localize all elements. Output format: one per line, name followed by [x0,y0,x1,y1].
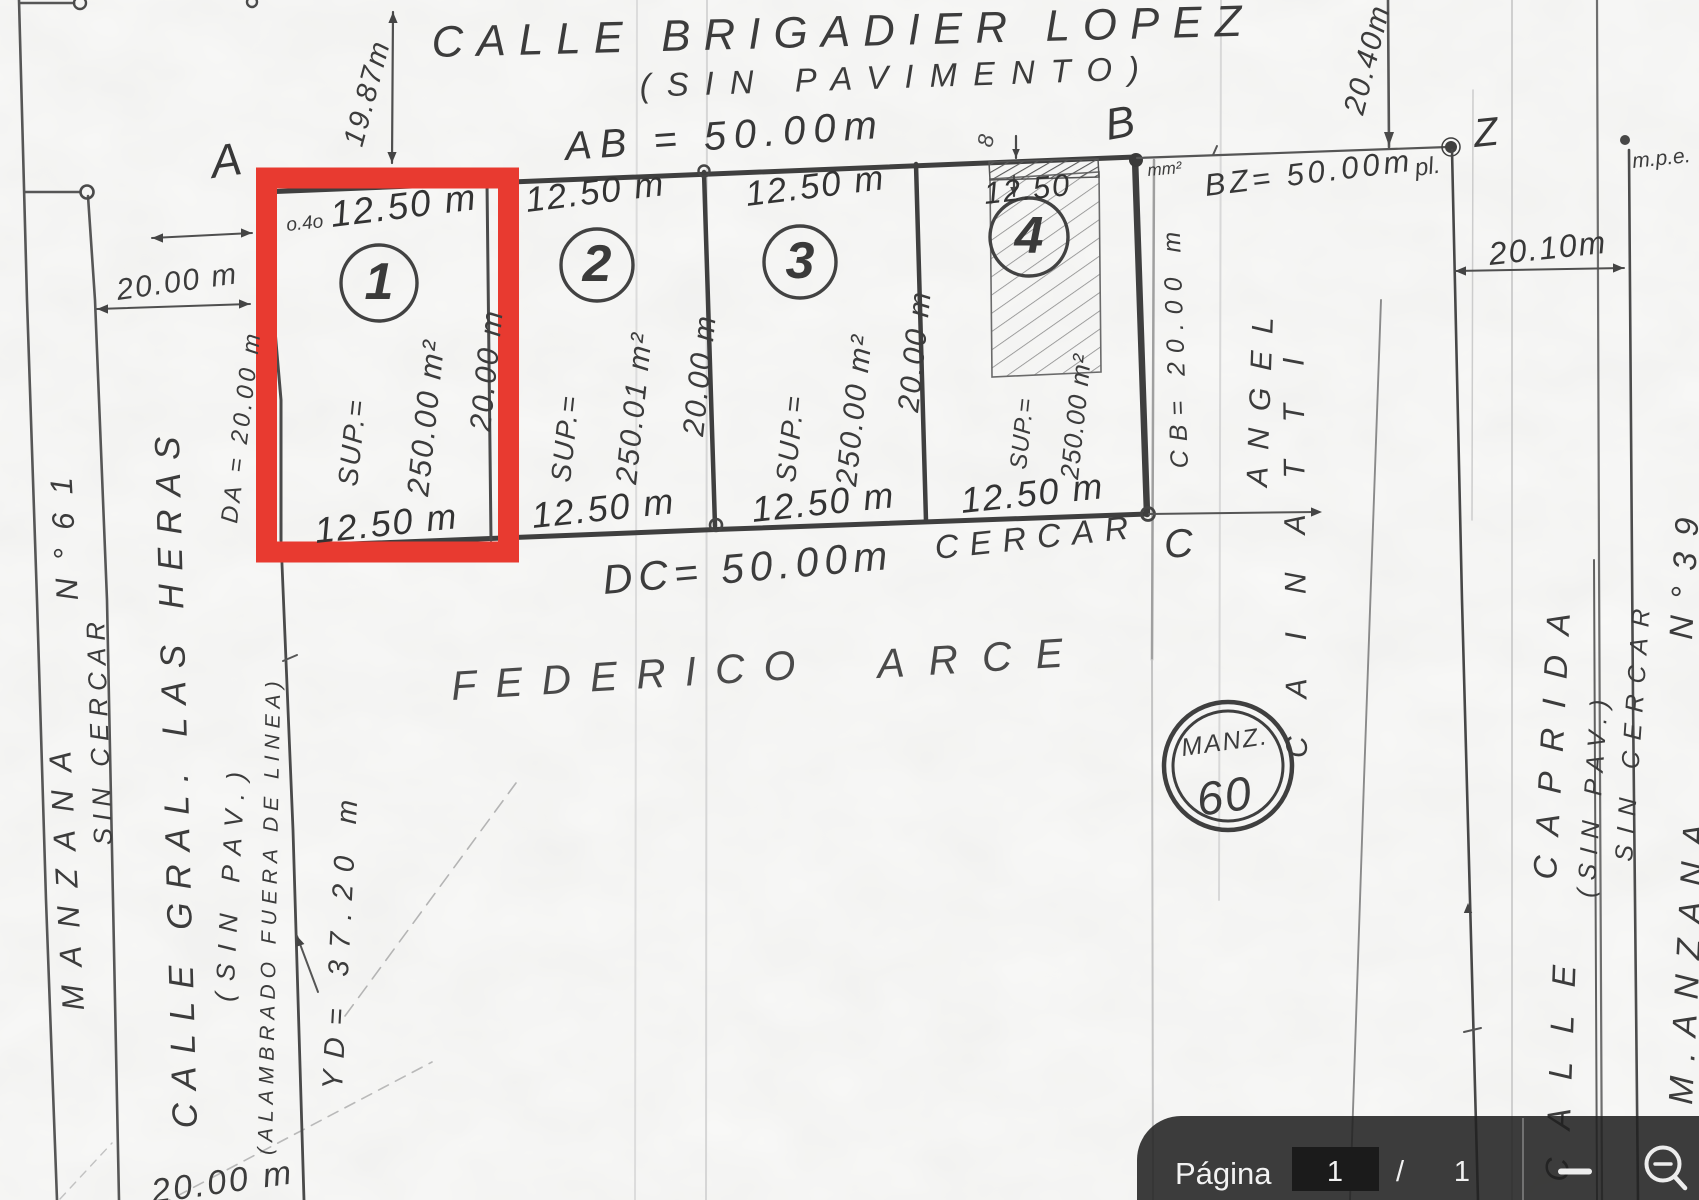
svg-text:/: / [1396,1156,1405,1188]
svg-text:pl.: pl. [1412,152,1442,182]
svg-text:1: 1 [1327,1156,1343,1188]
svg-text:o.4o: o.4o [285,211,324,236]
svg-text:ANGEL: ANGEL [1241,299,1281,489]
svg-text:CAINATTI: CAINATTI [1277,320,1314,759]
svg-text:mm²: mm² [1147,158,1184,180]
svg-text:C: C [1163,521,1196,567]
svg-text:60: 60 [1193,766,1256,826]
svg-text:1: 1 [365,253,394,311]
svg-text:3: 3 [786,232,815,290]
svg-text:N°39: N°39 [1662,501,1699,640]
svg-text:4: 4 [1014,207,1044,265]
svg-text:Página: Página [1175,1156,1272,1191]
svg-text:2: 2 [582,235,612,293]
svg-text:N°61: N°61 [43,459,85,602]
svg-text:1: 1 [1454,1156,1470,1188]
